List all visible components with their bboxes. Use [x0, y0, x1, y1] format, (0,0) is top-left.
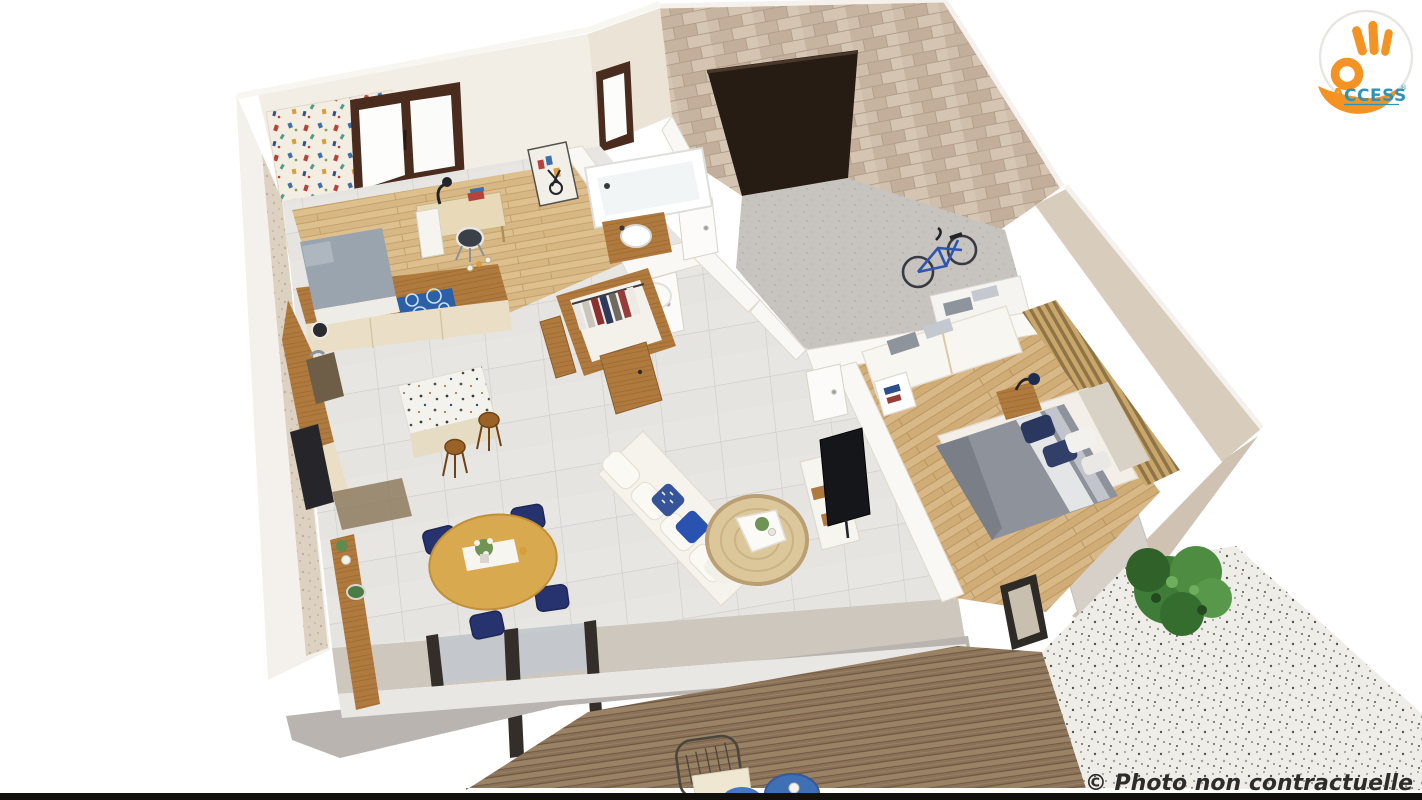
bedside-lamp-shade: [1028, 373, 1040, 385]
window-pane: [359, 103, 405, 189]
bath-faucet: [604, 183, 610, 189]
door-handle: [832, 390, 837, 395]
door-leaf: [806, 364, 848, 422]
window-pane: [410, 95, 455, 173]
bottom-black-bar: [0, 793, 1422, 800]
console-terrarium: [347, 585, 365, 599]
watermark-text: © Photo non contractuelle: [1085, 771, 1413, 796]
door-handle: [704, 226, 709, 231]
floorplan-render-page: A CCESS ® © Photo non contractuelle: [0, 0, 1422, 800]
floorplan-3d-render: A CCESS ® © Photo non contractuelle: [0, 0, 1422, 800]
door-handle: [638, 370, 642, 374]
logo-text-accent: A: [1331, 85, 1345, 106]
access-logo: A CCESS ®: [1318, 11, 1412, 114]
window-pane: [603, 73, 627, 142]
logo-registered-mark: ®: [1400, 84, 1407, 92]
single-bed-duvet: [300, 228, 396, 310]
television: [820, 428, 870, 526]
coffee-table-vase: [768, 528, 775, 535]
bag-on-floor: [312, 322, 328, 338]
coffee-table-plant: [755, 517, 769, 531]
sink-faucet: [619, 225, 624, 230]
coffee-cup: [789, 783, 799, 793]
logo-text-rest: CCESS: [1344, 86, 1407, 106]
vessel-sink: [621, 225, 651, 247]
desk-lamp-head: [442, 177, 452, 187]
candle: [519, 547, 527, 555]
console-vase: [342, 556, 351, 565]
window-bathroom: [596, 61, 634, 152]
console-plant: [336, 540, 348, 552]
